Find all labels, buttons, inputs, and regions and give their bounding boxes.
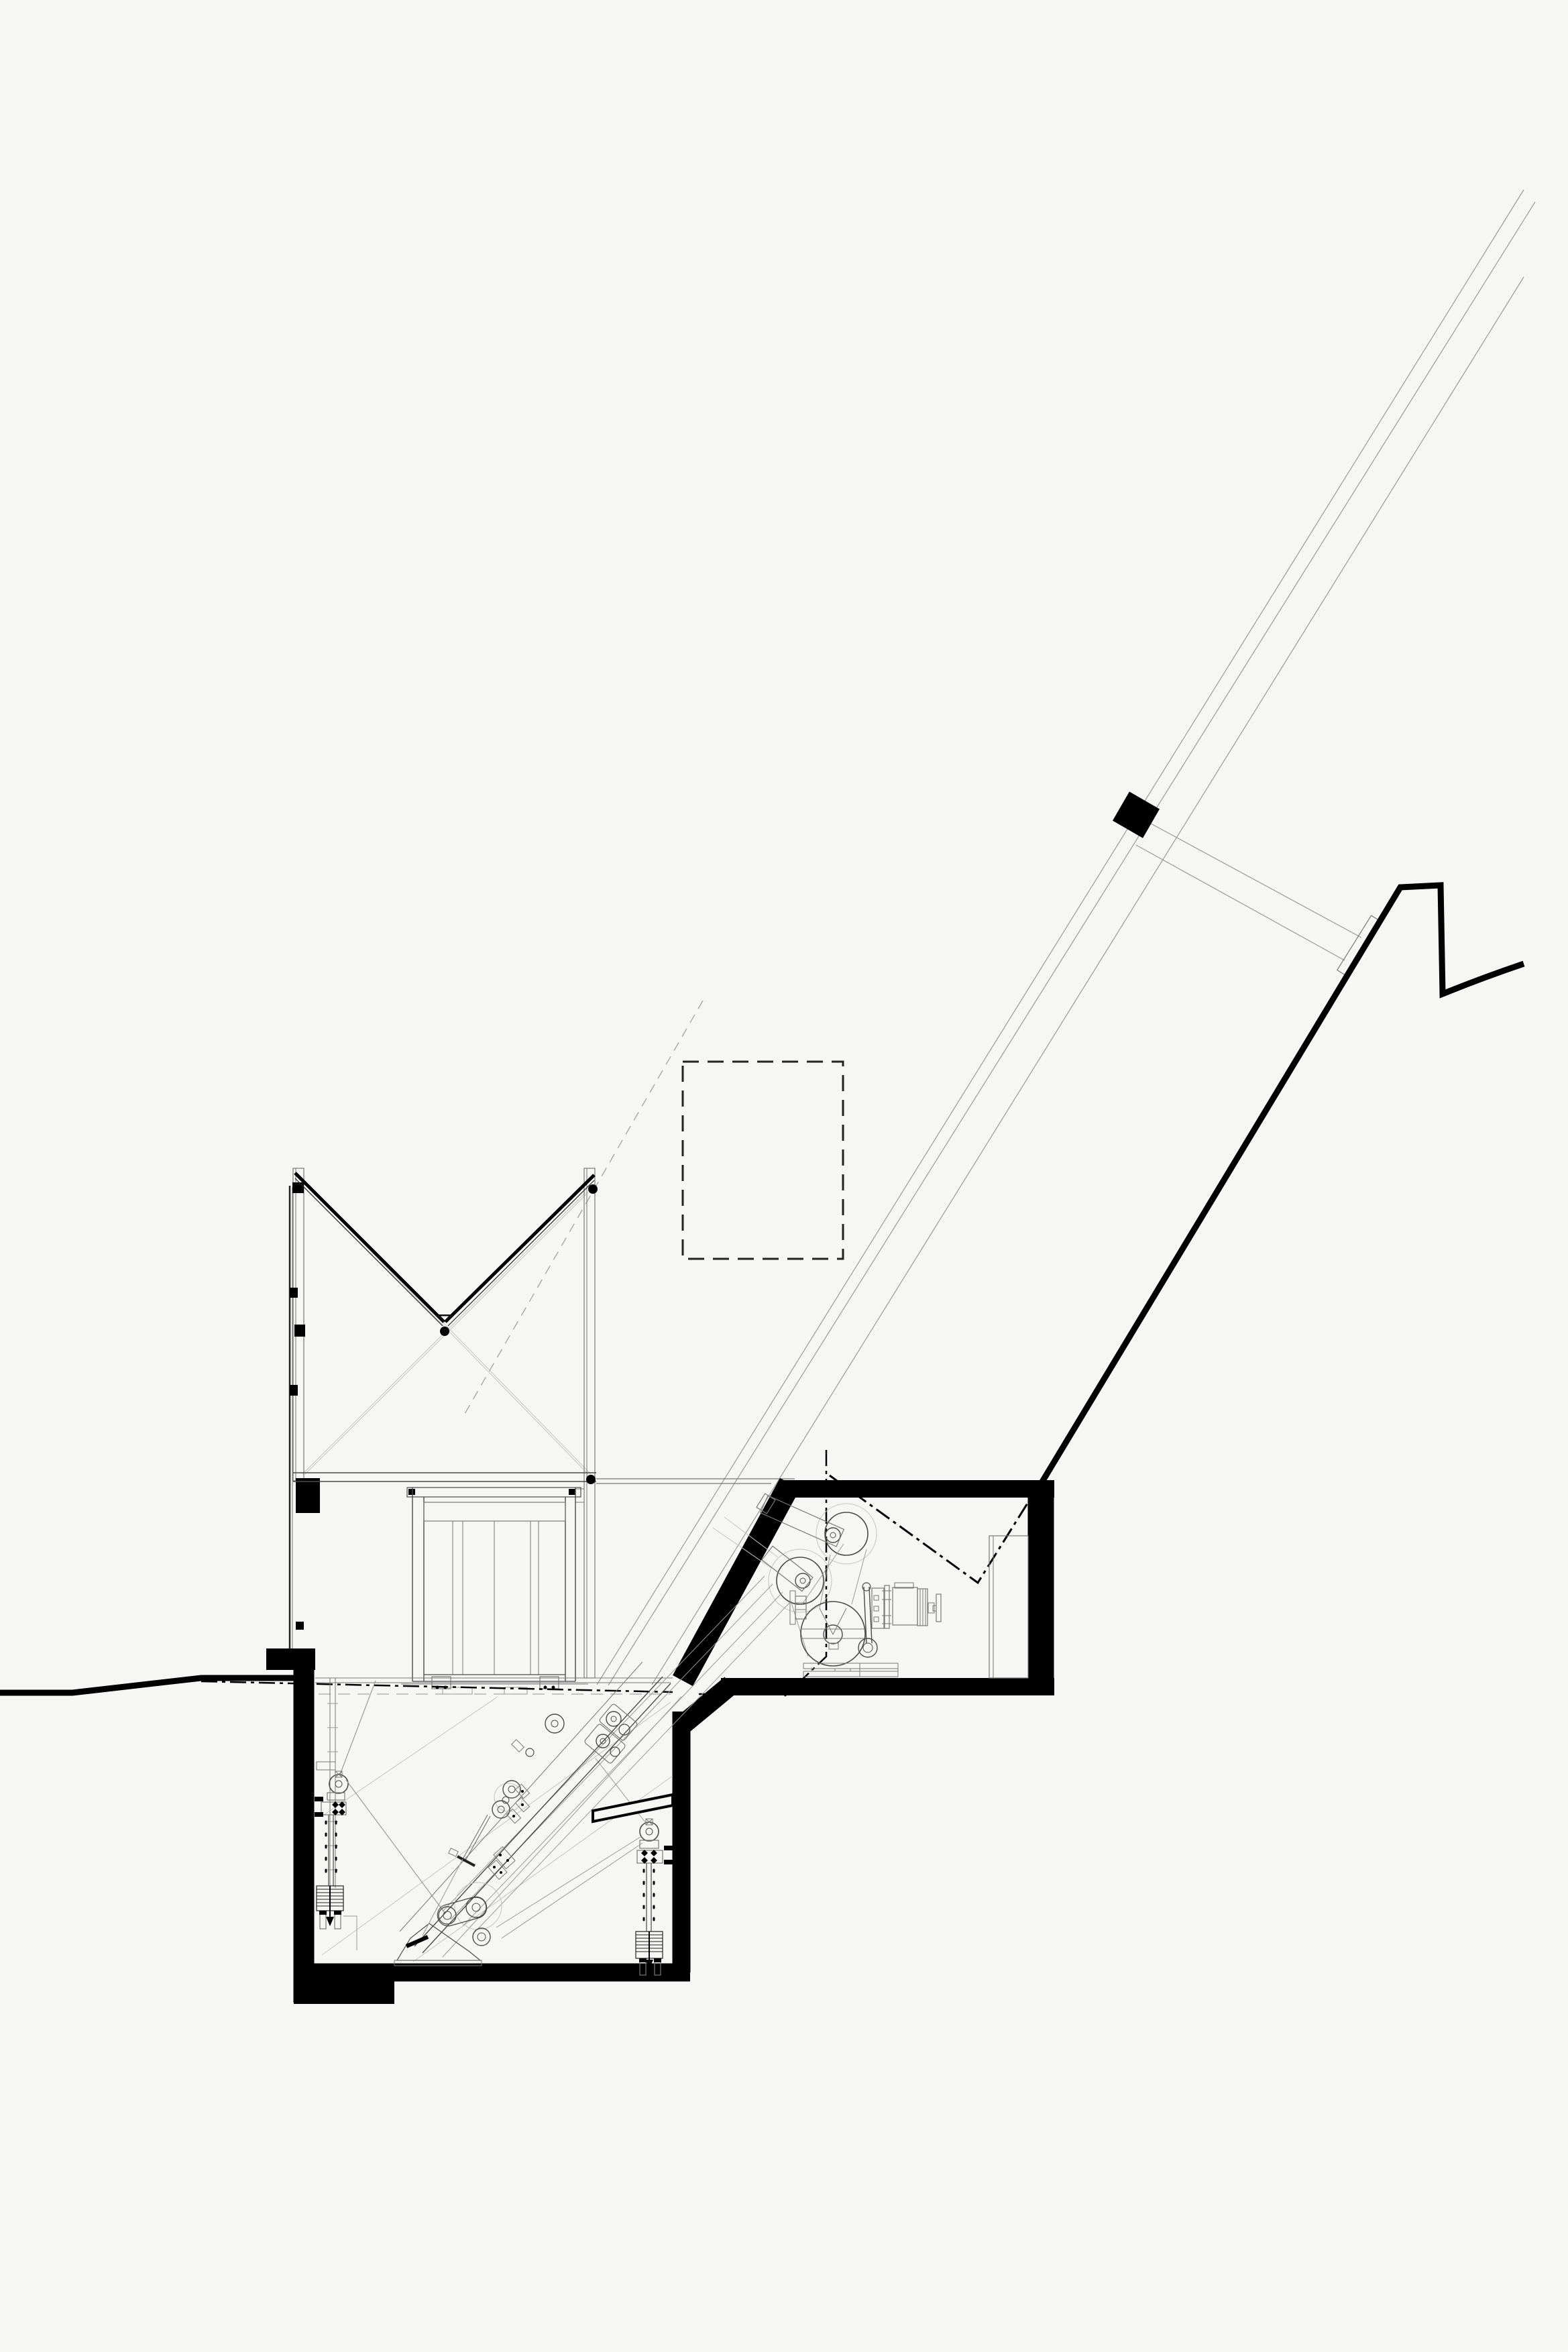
ground-level-block [266,1648,315,1670]
paper-background [0,0,1568,2352]
wall-anchor [664,1846,673,1850]
drawing-page [0,0,1568,2352]
wall-anchor [664,1860,673,1864]
wall-anchor [315,1812,323,1817]
lower-room-footing [294,1964,394,2004]
wall-anchor [315,1797,323,1801]
section-drawing [0,0,1568,2352]
